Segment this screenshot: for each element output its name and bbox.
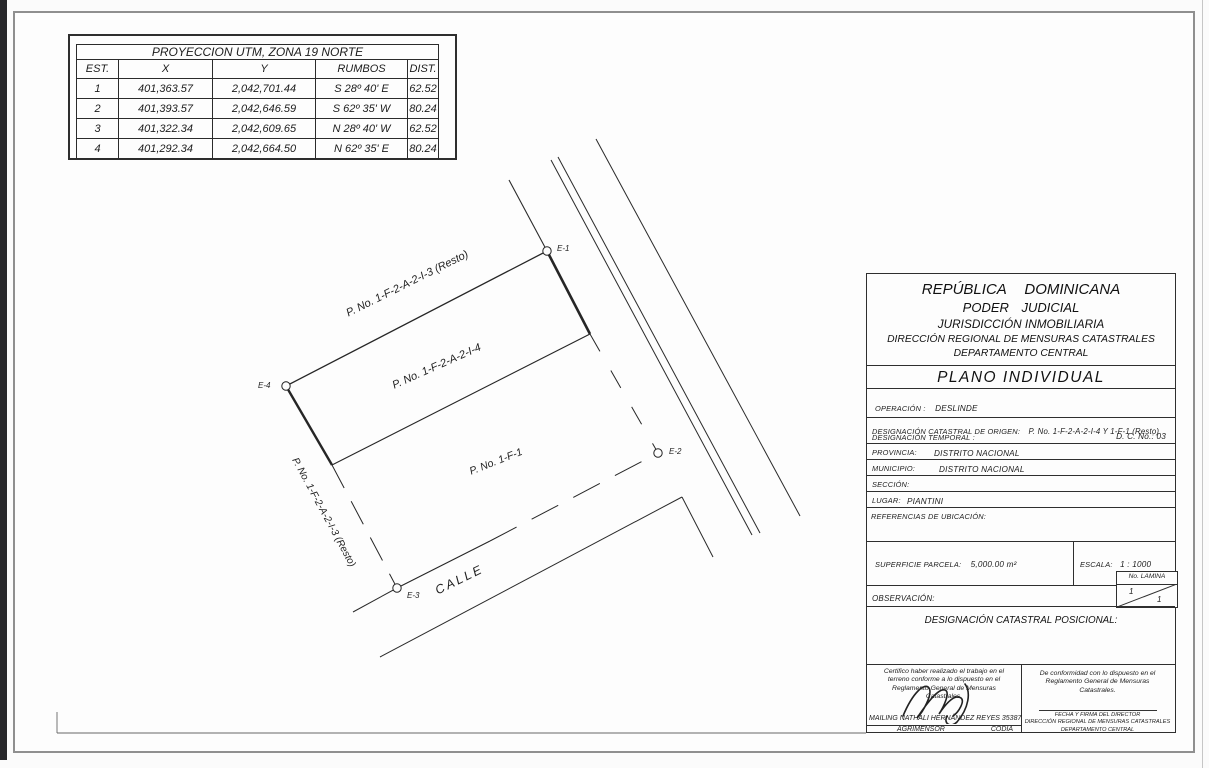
cell-rumbos: N 62º 35' E bbox=[316, 139, 408, 159]
boundary-e1-divider-thick bbox=[547, 251, 590, 334]
street-double-line-2 bbox=[558, 157, 760, 533]
org-line-3: JURISDICCIÓN INMOBILIARIA bbox=[867, 317, 1175, 331]
municipio-value: DISTRITO NACIONAL bbox=[939, 465, 1025, 474]
escala-label: ESCALA: bbox=[1080, 560, 1113, 569]
station-circle-e2 bbox=[654, 449, 662, 457]
station-label-e3: E-3 bbox=[407, 591, 419, 600]
cell-dist: 80.24 bbox=[408, 139, 439, 159]
cell-x: 401,292.34 bbox=[119, 139, 213, 159]
col-header-rumbos: RUMBOS bbox=[316, 60, 408, 79]
title-block: REPÚBLICA DOMINICANA PODER JUDICIAL JURI… bbox=[866, 273, 1176, 733]
escala-value: 1 : 1000 bbox=[1120, 560, 1151, 569]
cell-rumbos: S 28º 40' E bbox=[316, 79, 408, 99]
lugar-label: LUGAR: bbox=[872, 496, 901, 505]
station-circle-e3 bbox=[393, 584, 401, 592]
superficie-value: 5,000.00 m² bbox=[971, 560, 1017, 569]
table-row: 4 401,292.34 2,042,664.50 N 62º 35' E 80… bbox=[77, 139, 439, 159]
temporal-label: DESIGNACIÓN TEMPORAL : bbox=[872, 433, 975, 442]
operacion-value: DESLINDE bbox=[935, 404, 978, 413]
posicional-label: DESIGNACIÓN CATASTRAL POSICIONAL: bbox=[867, 615, 1175, 626]
table-row: 2 401,393.57 2,042,646.59 S 62º 35' W 80… bbox=[77, 99, 439, 119]
director-signature-line bbox=[1039, 710, 1157, 711]
cell-x: 401,322.34 bbox=[119, 119, 213, 139]
cell-est: 1 bbox=[77, 79, 119, 99]
cell-rumbos: N 28º 40' W bbox=[316, 119, 408, 139]
station-label-e4: E-4 bbox=[258, 381, 270, 390]
cell-dist: 80.24 bbox=[408, 99, 439, 119]
street-lines bbox=[353, 139, 800, 657]
lamina-number-bottom: 1 bbox=[1157, 595, 1161, 604]
col-header-y: Y bbox=[213, 60, 316, 79]
boundary-e4-divider-thick bbox=[286, 386, 332, 465]
lamina-box: No. LAMINA 1 1 bbox=[1116, 571, 1178, 608]
field-escala: ESCALA: 1 : 1000 bbox=[1080, 554, 1151, 572]
station-label-e1: E-1 bbox=[557, 244, 569, 253]
lamina-label: No. LAMINA bbox=[1117, 573, 1177, 580]
org-line-2: PODER JUDICIAL bbox=[867, 300, 1175, 315]
station-circle-e1 bbox=[543, 247, 551, 255]
field-operacion: OPERACIÓN : DESLINDE bbox=[875, 398, 978, 416]
lugar-value: PIANTINI bbox=[907, 497, 943, 506]
street-edge-above-e1 bbox=[509, 180, 547, 251]
lamina-number-top: 1 bbox=[1129, 587, 1133, 596]
street-far-edge bbox=[596, 139, 800, 516]
director-caption: FECHA Y FIRMA DEL DIRECTOR DIRECCIÓN REG… bbox=[1021, 712, 1174, 734]
org-line-4: DIRECCIÓN REGIONAL DE MENSURAS CATASTRAL… bbox=[867, 334, 1175, 345]
director-caption-2: DIRECCIÓN REGIONAL DE MENSURAS CATASTRAL… bbox=[1021, 719, 1174, 726]
boundary-e3-e2-dashed bbox=[490, 453, 658, 541]
provincia-value: DISTRITO NACIONAL bbox=[934, 449, 1020, 458]
referencias-label: REFERENCIAS DE UBICACIÓN: bbox=[871, 512, 986, 521]
lamina-diagonal bbox=[1117, 584, 1177, 607]
calle-south-edge bbox=[380, 497, 682, 657]
observacion-label: OBSERVACIÓN: bbox=[872, 594, 935, 603]
street-double-line-1 bbox=[551, 160, 752, 535]
cert-surveyor-cell: Certifico haber realizado el trabajo en … bbox=[867, 664, 1021, 732]
cell-y: 2,042,609.65 bbox=[213, 119, 316, 139]
cell-est: 2 bbox=[77, 99, 119, 119]
cert-director-cell: De conformidad con lo dispuesto en el Re… bbox=[1021, 664, 1174, 732]
col-header-est: EST. bbox=[77, 60, 119, 79]
municipio-label: MUNICIPIO: bbox=[872, 464, 915, 473]
codia-label: CODIA bbox=[991, 726, 1013, 733]
seccion-label: SECCIÓN: bbox=[872, 480, 909, 489]
cell-dist: 62.52 bbox=[408, 119, 439, 139]
org-line-1: REPÚBLICA DOMINICANA bbox=[867, 281, 1175, 298]
scanned-plan-page: P. No. 1-F-2-A-2-I-3 (Resto) P. No. 1-F-… bbox=[0, 0, 1209, 768]
street-corner-edge bbox=[682, 497, 713, 557]
cell-y: 2,042,664.50 bbox=[213, 139, 316, 159]
superficie-label: SUPERFICIE PARCELA: bbox=[875, 560, 961, 569]
cell-x: 401,363.57 bbox=[119, 79, 213, 99]
table-row: 1 401,363.57 2,042,701.44 S 28º 40' E 62… bbox=[77, 79, 439, 99]
cell-est: 3 bbox=[77, 119, 119, 139]
surveyor-name: MAILING NATHALI HERNÁNDEZ REYES 35387 bbox=[869, 715, 1019, 722]
operacion-label: OPERACIÓN : bbox=[875, 404, 926, 413]
plan-type-title: PLANO INDIVIDUAL bbox=[867, 369, 1175, 387]
director-caption-3: DEPARTAMENTO CENTRAL bbox=[1021, 727, 1174, 734]
boundary-divider-e3-dashed bbox=[332, 465, 397, 588]
surveyor-title: AGRIMENSOR bbox=[897, 726, 945, 733]
col-header-x: X bbox=[119, 60, 213, 79]
utm-table-title: PROYECCION UTM, ZONA 19 NORTE bbox=[77, 45, 439, 60]
cell-y: 2,042,646.59 bbox=[213, 99, 316, 119]
boundary-divider-e2-dashed bbox=[590, 334, 658, 453]
provincia-label: PROVINCIA: bbox=[872, 448, 917, 457]
station-circle-e4 bbox=[282, 382, 290, 390]
org-line-5: DEPARTAMENTO CENTRAL bbox=[867, 348, 1175, 359]
table-row: 3 401,322.34 2,042,609.65 N 28º 40' W 62… bbox=[77, 119, 439, 139]
title-block-header: REPÚBLICA DOMINICANA PODER JUDICIAL JURI… bbox=[867, 281, 1175, 359]
cell-y: 2,042,701.44 bbox=[213, 79, 316, 99]
cell-est: 4 bbox=[77, 139, 119, 159]
dc-no-value: D. C. No.: 03 bbox=[1116, 432, 1166, 441]
cell-rumbos: S 62º 35' W bbox=[316, 99, 408, 119]
field-superficie: SUPERFICIE PARCELA: 5,000.00 m² bbox=[875, 554, 1017, 572]
cert-director-text: De conformidad con lo dispuesto en el Re… bbox=[1029, 670, 1166, 695]
street-edge-below-e3 bbox=[353, 588, 397, 612]
station-label-e2: E-2 bbox=[669, 447, 681, 456]
utm-coordinates-table: PROYECCION UTM, ZONA 19 NORTE EST. X Y R… bbox=[76, 44, 439, 159]
col-header-dist: DIST. bbox=[408, 60, 439, 79]
cell-x: 401,393.57 bbox=[119, 99, 213, 119]
sheet-inner-frame bbox=[57, 712, 866, 733]
cell-dist: 62.52 bbox=[408, 79, 439, 99]
